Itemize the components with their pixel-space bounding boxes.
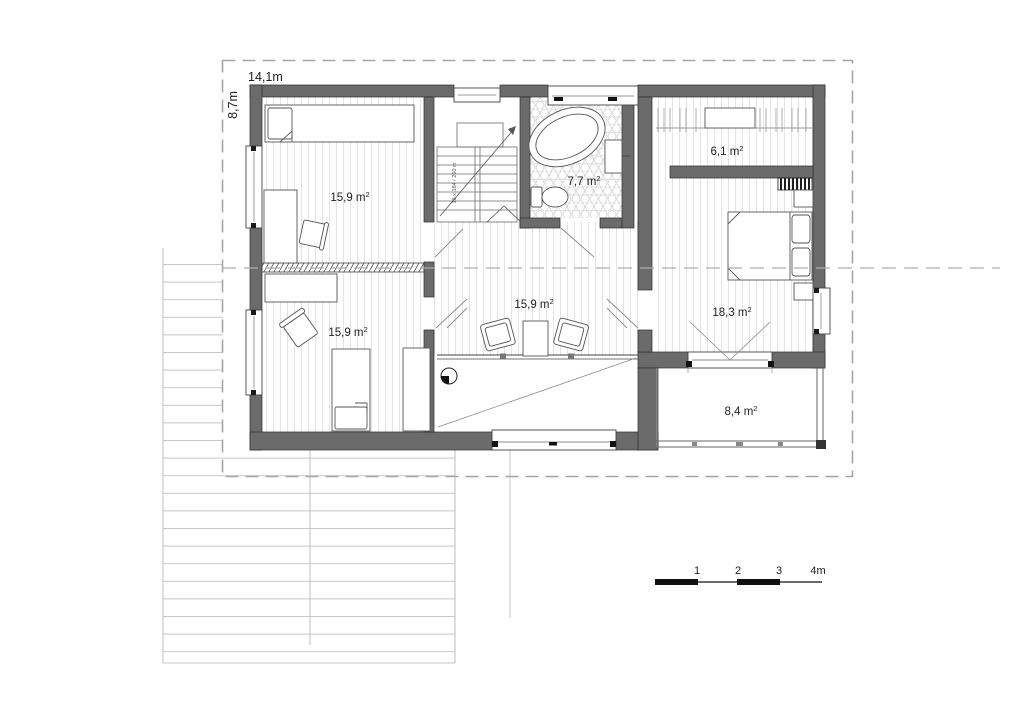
scale-tick-1: 1 [694, 565, 700, 577]
wardrobe-bottom-left [403, 348, 430, 431]
double-bed [728, 212, 812, 280]
bed-single-top-left [265, 105, 414, 142]
railing-corner-post [816, 440, 826, 449]
desk-top-left [264, 190, 297, 263]
stair-direction-arrowhead [508, 126, 516, 135]
scale-bar: 1 2 3 4m [655, 565, 826, 585]
window-right-bedroom [813, 288, 830, 334]
label-balcony: 8,4 m2 [725, 404, 758, 418]
floor-plan-page: 16 x 184 / 260 m [0, 0, 1024, 724]
desk-bottom-left [265, 274, 337, 302]
label-bedroom-right: 18,3 m2 [712, 305, 751, 319]
window-left-upper [246, 146, 262, 228]
scale-tick-2: 2 [735, 565, 741, 577]
label-bedroom-bottom-left: 15,9 m2 [328, 325, 367, 339]
staircase [437, 123, 521, 222]
window-left-lower [246, 310, 262, 395]
scale-tick-4: 4m [810, 565, 825, 577]
void-diagonal [438, 358, 636, 427]
overall-width-label: 14,1m [248, 70, 283, 84]
label-wardrobe: 6,1 m2 [711, 144, 744, 158]
toilet [531, 187, 568, 207]
window-bottom-hall [492, 430, 616, 450]
level-marker-icon [441, 368, 457, 384]
radiator [778, 178, 812, 190]
nightstand-top [794, 190, 813, 207]
label-bathroom: 7,7 m2 [568, 174, 601, 188]
window-top-stairwell [454, 88, 500, 102]
stair-break-mark [487, 206, 521, 222]
window-top-bathroom [548, 86, 638, 105]
window-bedroom-balcony [686, 352, 774, 373]
stair-annotation: 16 x 184 / 260 m [452, 162, 458, 203]
bed-single-bottom-left [332, 349, 370, 431]
scale-tick-3: 3 [776, 565, 782, 577]
gallery-railing [437, 354, 638, 428]
nightstand-bottom [794, 283, 813, 300]
overall-height-label: 8,7m [226, 91, 240, 119]
closet-shelf [705, 108, 755, 128]
label-bedroom-top-left: 15,9 m2 [330, 190, 369, 204]
hall-table [523, 321, 548, 356]
floor-plan-drawing: 16 x 184 / 260 m [0, 0, 1024, 724]
label-hall: 15,9 m2 [514, 297, 553, 311]
